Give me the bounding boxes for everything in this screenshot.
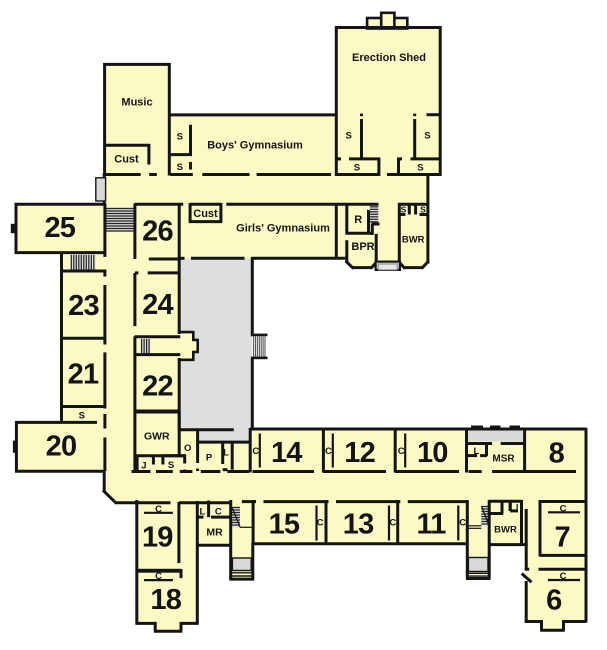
svg-text:22: 22: [142, 371, 173, 403]
svg-text:S: S: [346, 131, 352, 142]
svg-text:MSR: MSR: [492, 454, 515, 465]
svg-text:P: P: [206, 453, 213, 464]
svg-text:7: 7: [555, 522, 570, 554]
svg-text:C: C: [398, 446, 405, 457]
svg-text:S: S: [424, 131, 430, 142]
svg-text:I: I: [516, 502, 518, 512]
svg-text:S: S: [417, 163, 423, 174]
svg-text:11: 11: [416, 509, 446, 541]
svg-text:C: C: [317, 518, 324, 529]
svg-text:25: 25: [44, 212, 75, 244]
svg-text:GWR: GWR: [144, 431, 170, 443]
svg-text:C: C: [252, 446, 259, 457]
svg-text:8: 8: [549, 438, 565, 470]
svg-text:C: C: [155, 504, 162, 515]
svg-text:S: S: [177, 162, 183, 173]
svg-text:C: C: [389, 518, 396, 529]
svg-text:BWR: BWR: [402, 235, 425, 246]
svg-text:S: S: [177, 132, 183, 143]
svg-text:19: 19: [142, 522, 173, 554]
svg-text:S: S: [79, 411, 85, 422]
svg-text:18: 18: [150, 584, 181, 616]
svg-text:23: 23: [68, 290, 99, 322]
svg-text:20: 20: [46, 431, 77, 463]
svg-text:C: C: [215, 507, 222, 518]
svg-text:L: L: [199, 507, 205, 518]
svg-text:MR: MR: [206, 527, 223, 539]
svg-text:14: 14: [271, 437, 302, 469]
svg-text:12: 12: [344, 437, 375, 469]
svg-text:Girls' Gymnasium: Girls' Gymnasium: [236, 223, 330, 235]
svg-text:J: J: [141, 461, 146, 472]
svg-text:Erection Shed: Erection Shed: [352, 52, 426, 64]
svg-text:Cust: Cust: [193, 208, 218, 220]
svg-text:26: 26: [142, 216, 173, 248]
svg-text:15: 15: [269, 509, 300, 541]
svg-text:BWR: BWR: [494, 525, 517, 536]
svg-text:C: C: [325, 446, 332, 457]
svg-text:BPR: BPR: [351, 241, 374, 253]
svg-text:C: C: [560, 571, 567, 582]
svg-text:S: S: [401, 205, 407, 215]
svg-text:10: 10: [417, 437, 448, 469]
svg-text:Boys' Gymnasium: Boys' Gymnasium: [207, 140, 303, 152]
svg-text:S: S: [168, 460, 174, 471]
svg-text:L: L: [223, 448, 229, 459]
svg-text:S: S: [354, 163, 360, 174]
svg-text:C: C: [459, 518, 466, 529]
svg-text:C: C: [560, 504, 567, 515]
svg-text:R: R: [354, 214, 362, 226]
svg-text:L: L: [473, 446, 479, 457]
svg-text:Cust: Cust: [114, 154, 139, 166]
svg-text:Music: Music: [121, 97, 152, 109]
svg-text:6: 6: [546, 585, 562, 617]
svg-text:C: C: [155, 571, 162, 582]
svg-text:24: 24: [142, 289, 173, 321]
svg-text:21: 21: [68, 359, 99, 391]
svg-text:O: O: [184, 443, 191, 454]
svg-text:S: S: [420, 205, 426, 215]
svg-text:13: 13: [343, 509, 374, 541]
